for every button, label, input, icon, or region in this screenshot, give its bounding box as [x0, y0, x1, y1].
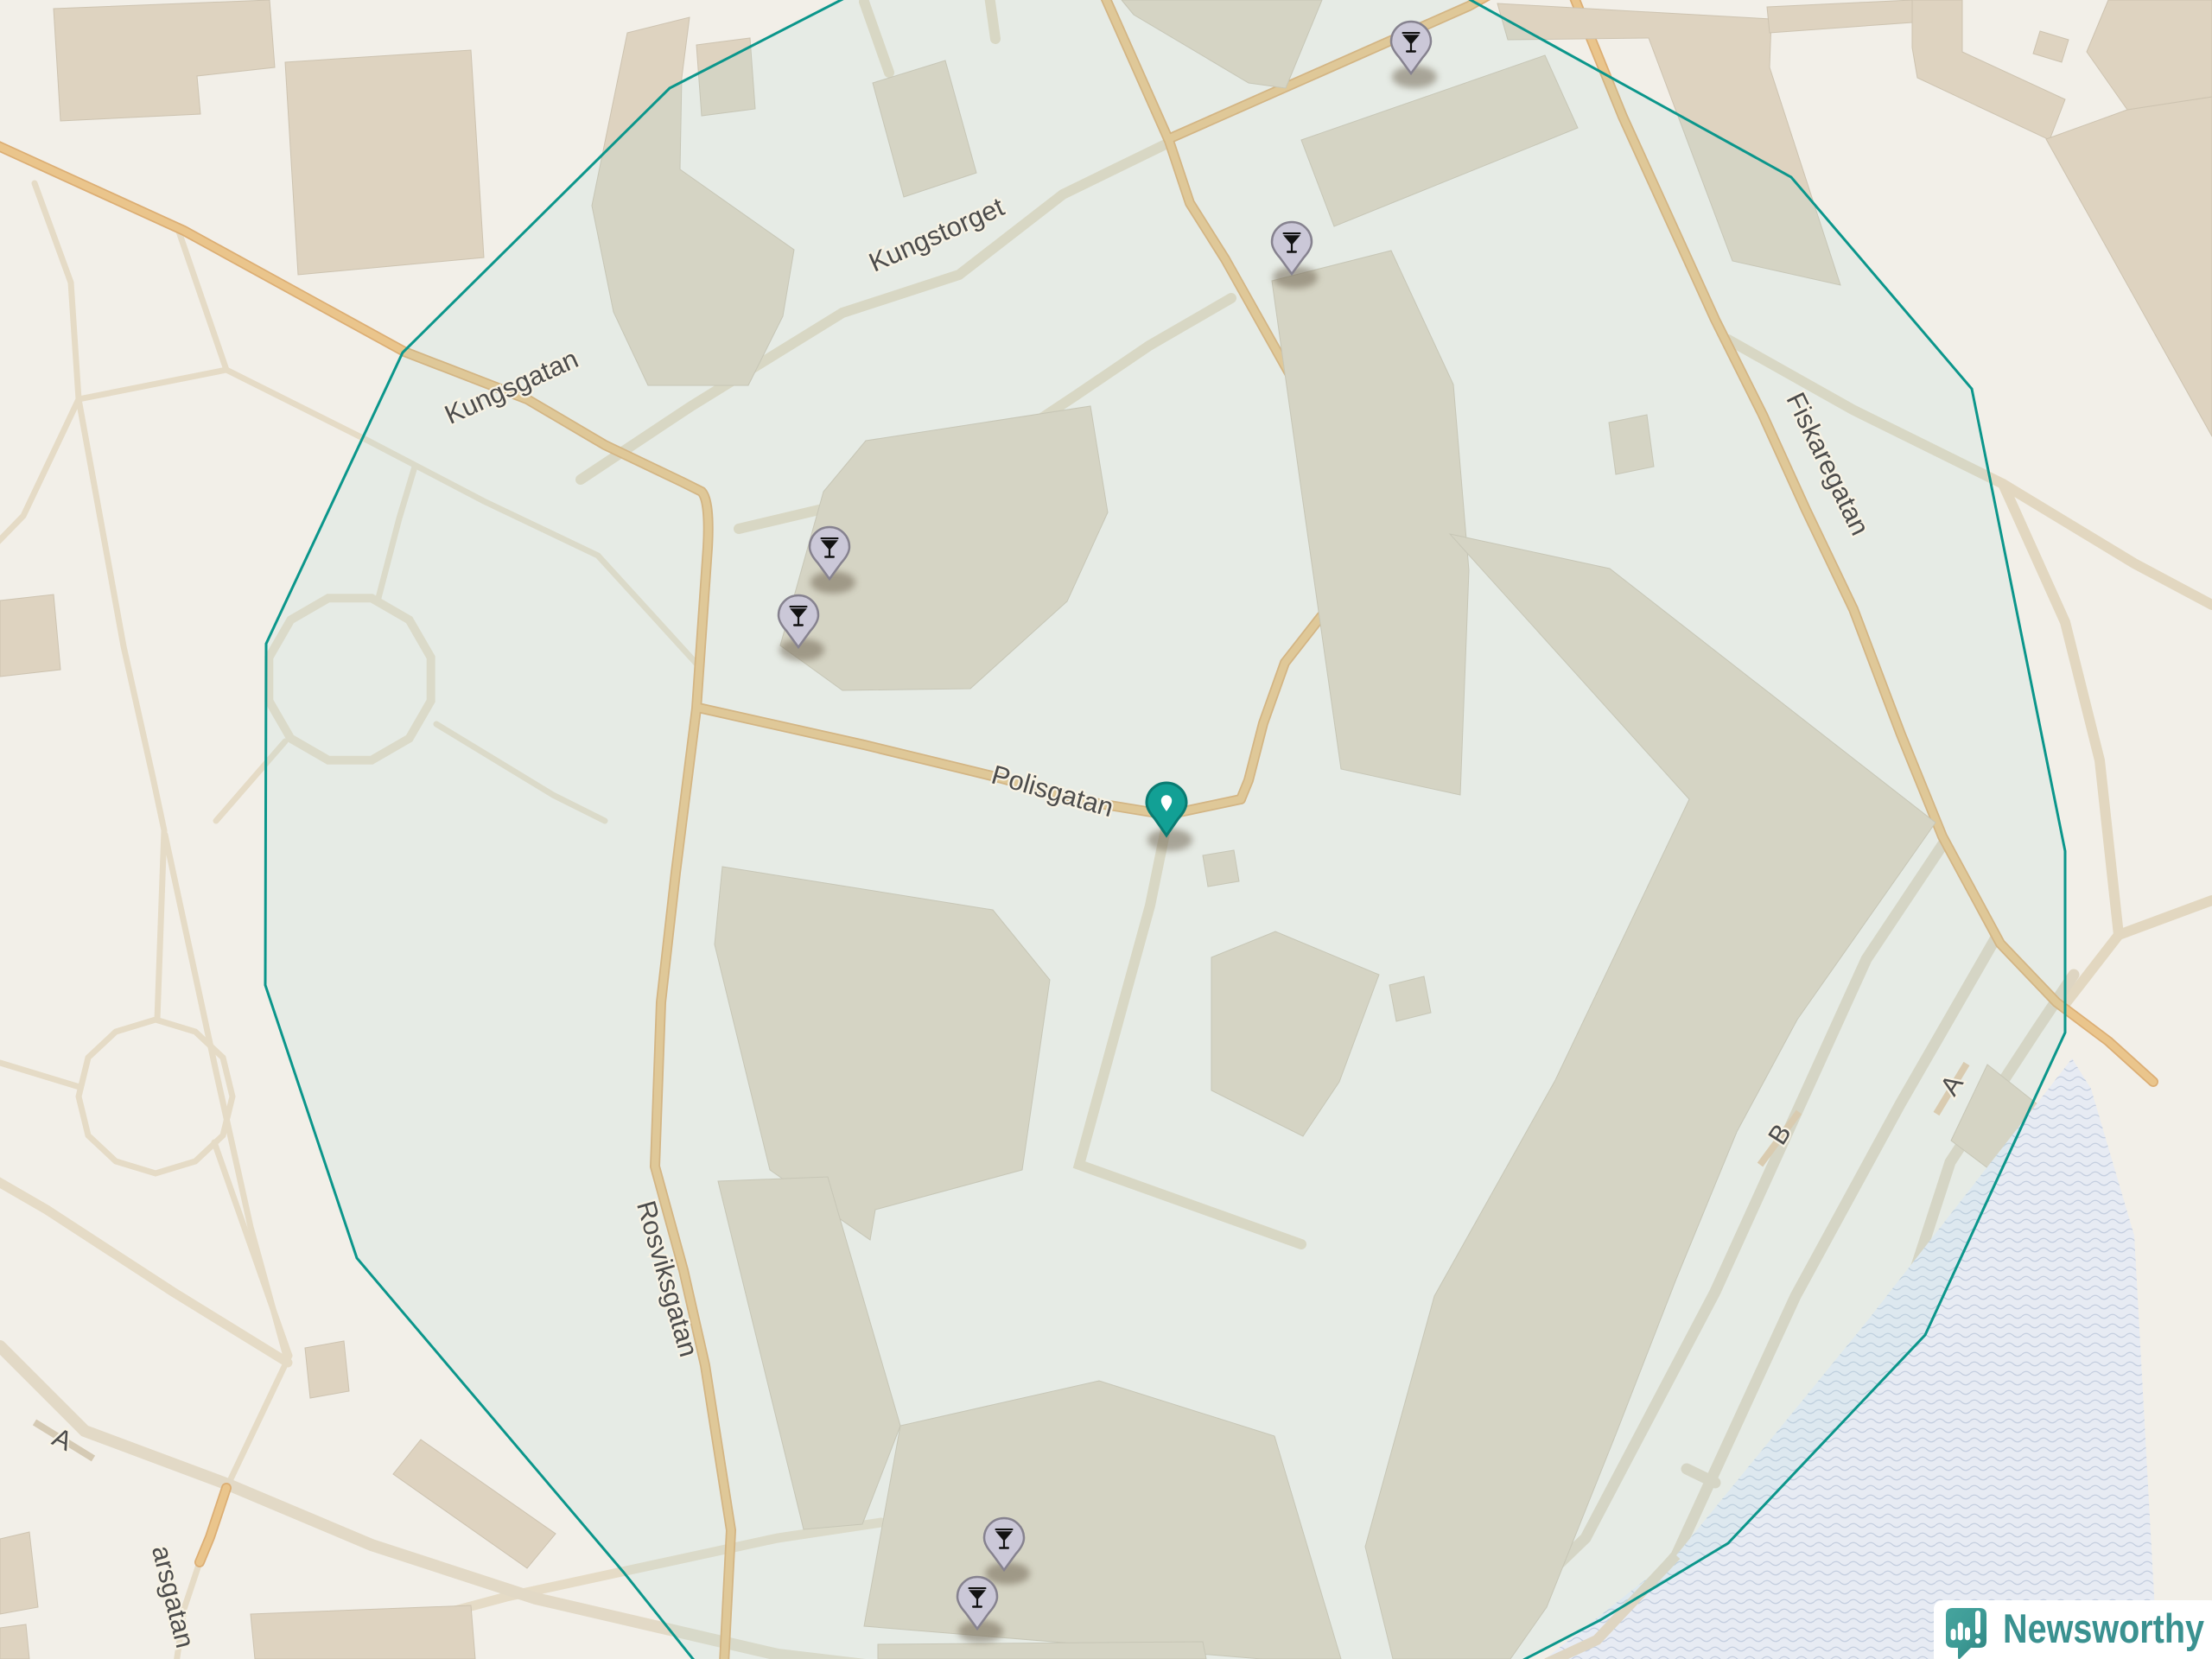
svg-text:Newsworthy: Newsworthy [2003, 1605, 2204, 1651]
